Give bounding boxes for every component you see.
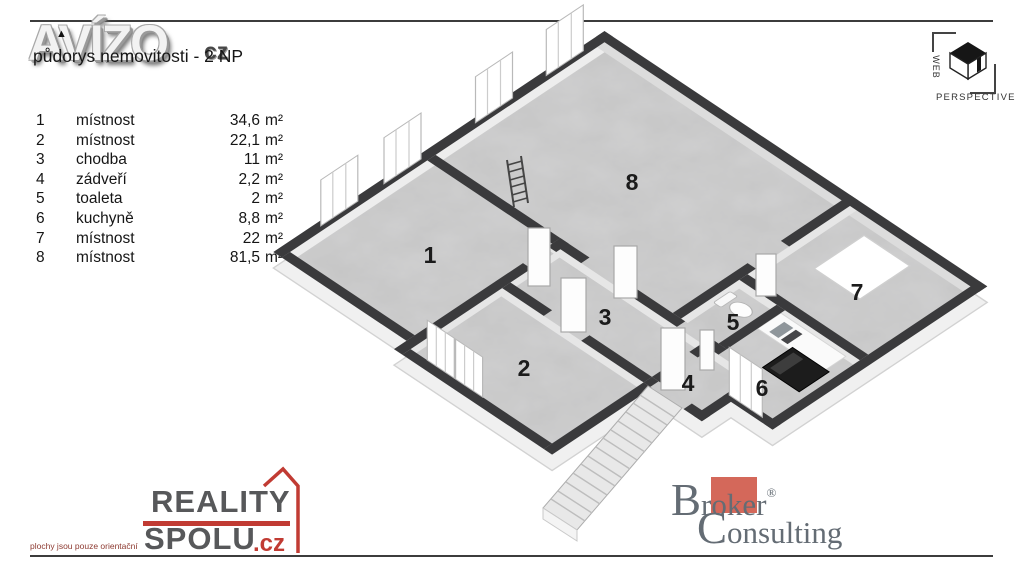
door-icon	[700, 330, 714, 370]
room-label-7: 7	[851, 279, 864, 305]
room-label-8: 8	[626, 169, 639, 195]
disclaimer-text: plochy jsou pouze orientační	[30, 541, 138, 551]
reality-spolu-tld: .cz	[253, 530, 285, 558]
room-label-1: 1	[424, 242, 437, 268]
web-perspective-word1: WEB	[931, 55, 941, 79]
reality-spolu-word2: SPOLU	[144, 521, 256, 557]
room-label-2: 2	[518, 355, 531, 381]
registered-icon: ®	[766, 485, 776, 500]
door-icon	[561, 278, 586, 332]
reality-spolu-word1: REALITY	[151, 484, 291, 520]
corner-bracket-icon	[933, 33, 956, 52]
room-label-4: 4	[682, 370, 695, 396]
house-icon	[950, 42, 986, 79]
broker-logo-word2: Consulting	[697, 506, 842, 551]
web-perspective-word2: PERSPECTIVE	[936, 92, 1016, 103]
door-icon	[528, 228, 550, 286]
room-label-6: 6	[756, 375, 769, 401]
door-icon	[756, 254, 776, 296]
broker-initial: C	[697, 503, 727, 553]
broker-letters: onsulting	[727, 515, 842, 550]
door-icon	[614, 246, 637, 298]
room-label-3: 3	[599, 304, 612, 330]
page: AVÍZO cz ▲ půdorys nemovitosti - 2 NP 1m…	[0, 0, 1024, 576]
room-label-5: 5	[727, 309, 740, 335]
